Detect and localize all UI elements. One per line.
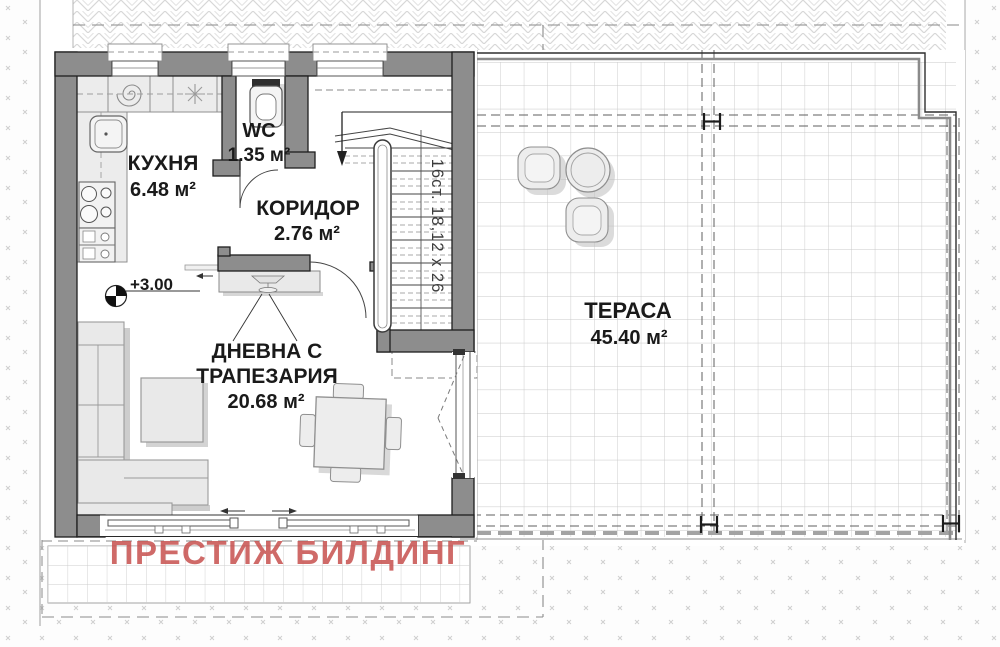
window bbox=[228, 44, 289, 76]
living-name-line2: ТРАПЕЗАРИЯ bbox=[196, 365, 338, 388]
terrace-tile-grid bbox=[477, 62, 956, 537]
window bbox=[313, 44, 387, 76]
terrace-chair bbox=[566, 198, 608, 242]
sliding-panel bbox=[108, 520, 235, 526]
windows bbox=[108, 44, 387, 76]
building: КУХНЯ 6.48 м² WC 1.35 м² КОРИДОР 2.76 м²… bbox=[55, 44, 477, 537]
dining-chair bbox=[300, 414, 316, 447]
wc-area-label: 1.35 м² bbox=[228, 145, 291, 166]
living-name-line1: ДНЕВНА С bbox=[212, 340, 323, 363]
terrace-round-table bbox=[566, 148, 610, 192]
floor-plan-page: ТЕРАСА 45.40 м² bbox=[0, 0, 1000, 647]
kitchen-name-label: КУХНЯ bbox=[128, 152, 199, 175]
kitchen-appliances bbox=[79, 228, 115, 262]
stairs-count-label: 16ст. 18,12 x 26 bbox=[428, 159, 446, 294]
corridor-name-label: КОРИДОР bbox=[256, 197, 360, 220]
dining-chair bbox=[385, 417, 401, 450]
terrace-chair bbox=[518, 147, 560, 189]
kitchen-sink bbox=[90, 116, 127, 152]
stair-handrail bbox=[374, 140, 391, 332]
corridor-area-label: 2.76 м² bbox=[274, 223, 340, 245]
wc-name-label: WC bbox=[242, 120, 275, 142]
window bbox=[108, 44, 162, 76]
coffee-table bbox=[141, 378, 208, 447]
elevation-label: +3.00 bbox=[130, 275, 173, 294]
terrace-area-label: 45.40 м² bbox=[590, 327, 667, 349]
stove bbox=[79, 182, 115, 228]
floor-plan-canvas: ТЕРАСА 45.40 м² bbox=[0, 0, 1000, 647]
kitchen-area-label: 6.48 м² bbox=[130, 179, 196, 201]
tv-cabinet bbox=[219, 271, 323, 296]
living-area-label: 20.68 м² bbox=[227, 391, 304, 413]
sliding-panel bbox=[282, 520, 409, 526]
terrace: ТЕРАСА 45.40 м² bbox=[458, 50, 965, 540]
watermark: ПРЕСТИЖ БИЛДИНГ bbox=[110, 534, 466, 571]
terrace-name-label: ТЕРАСА bbox=[584, 298, 672, 323]
